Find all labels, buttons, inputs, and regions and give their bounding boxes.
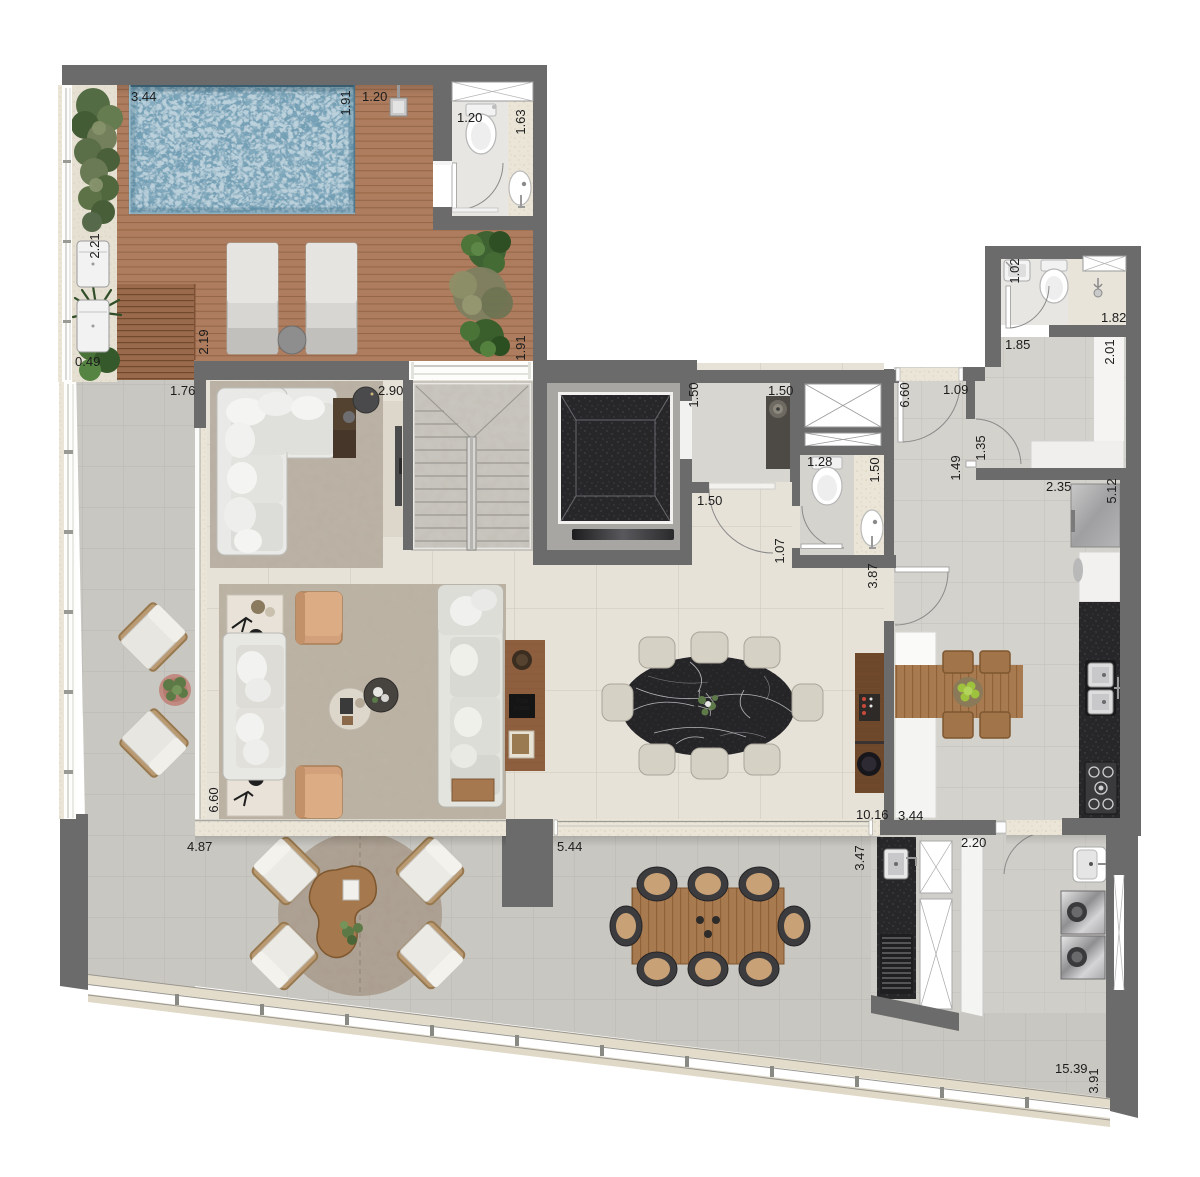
svg-text:3.44: 3.44 <box>131 89 156 104</box>
svg-text:2.01: 2.01 <box>1102 339 1117 364</box>
svg-text:5.44: 5.44 <box>557 839 582 854</box>
svg-text:2.21: 2.21 <box>87 233 102 258</box>
svg-text:1.82: 1.82 <box>1101 310 1126 325</box>
svg-text:6.60: 6.60 <box>206 787 221 812</box>
svg-text:1.49: 1.49 <box>948 455 963 480</box>
svg-text:3.87: 3.87 <box>865 563 880 588</box>
svg-text:1.63: 1.63 <box>513 109 528 134</box>
svg-text:5.12: 5.12 <box>1104 478 1119 503</box>
svg-text:2.19: 2.19 <box>196 329 211 354</box>
svg-text:1.85: 1.85 <box>1005 337 1030 352</box>
svg-text:1.20: 1.20 <box>457 110 482 125</box>
svg-text:0.49: 0.49 <box>75 354 100 369</box>
svg-text:1.09: 1.09 <box>943 382 968 397</box>
svg-text:1.50: 1.50 <box>867 457 882 482</box>
svg-text:1.07: 1.07 <box>772 538 787 563</box>
svg-text:1.91: 1.91 <box>513 335 528 360</box>
svg-text:1.28: 1.28 <box>807 454 832 469</box>
svg-text:1.50: 1.50 <box>697 493 722 508</box>
svg-text:10.16: 10.16 <box>856 807 889 822</box>
svg-text:1.91: 1.91 <box>338 90 353 115</box>
svg-text:1.20: 1.20 <box>362 89 387 104</box>
svg-text:1.35: 1.35 <box>973 435 988 460</box>
svg-text:TOM: TOM <box>516 699 529 705</box>
svg-text:FORD: FORD <box>514 706 530 712</box>
svg-text:1.50: 1.50 <box>686 382 701 407</box>
svg-text:3.91: 3.91 <box>1086 1068 1101 1093</box>
svg-text:2.20: 2.20 <box>961 835 986 850</box>
svg-text:2.90: 2.90 <box>378 383 403 398</box>
svg-text:1.02: 1.02 <box>1007 258 1022 283</box>
svg-text:6.60: 6.60 <box>897 382 912 407</box>
svg-text:1.76: 1.76 <box>170 383 195 398</box>
svg-text:3.47: 3.47 <box>852 845 867 870</box>
svg-text:1.50: 1.50 <box>768 383 793 398</box>
svg-text:15.39: 15.39 <box>1055 1061 1088 1076</box>
svg-text:2.35: 2.35 <box>1046 479 1071 494</box>
svg-text:3.44: 3.44 <box>898 808 923 823</box>
svg-text:4.87: 4.87 <box>187 839 212 854</box>
